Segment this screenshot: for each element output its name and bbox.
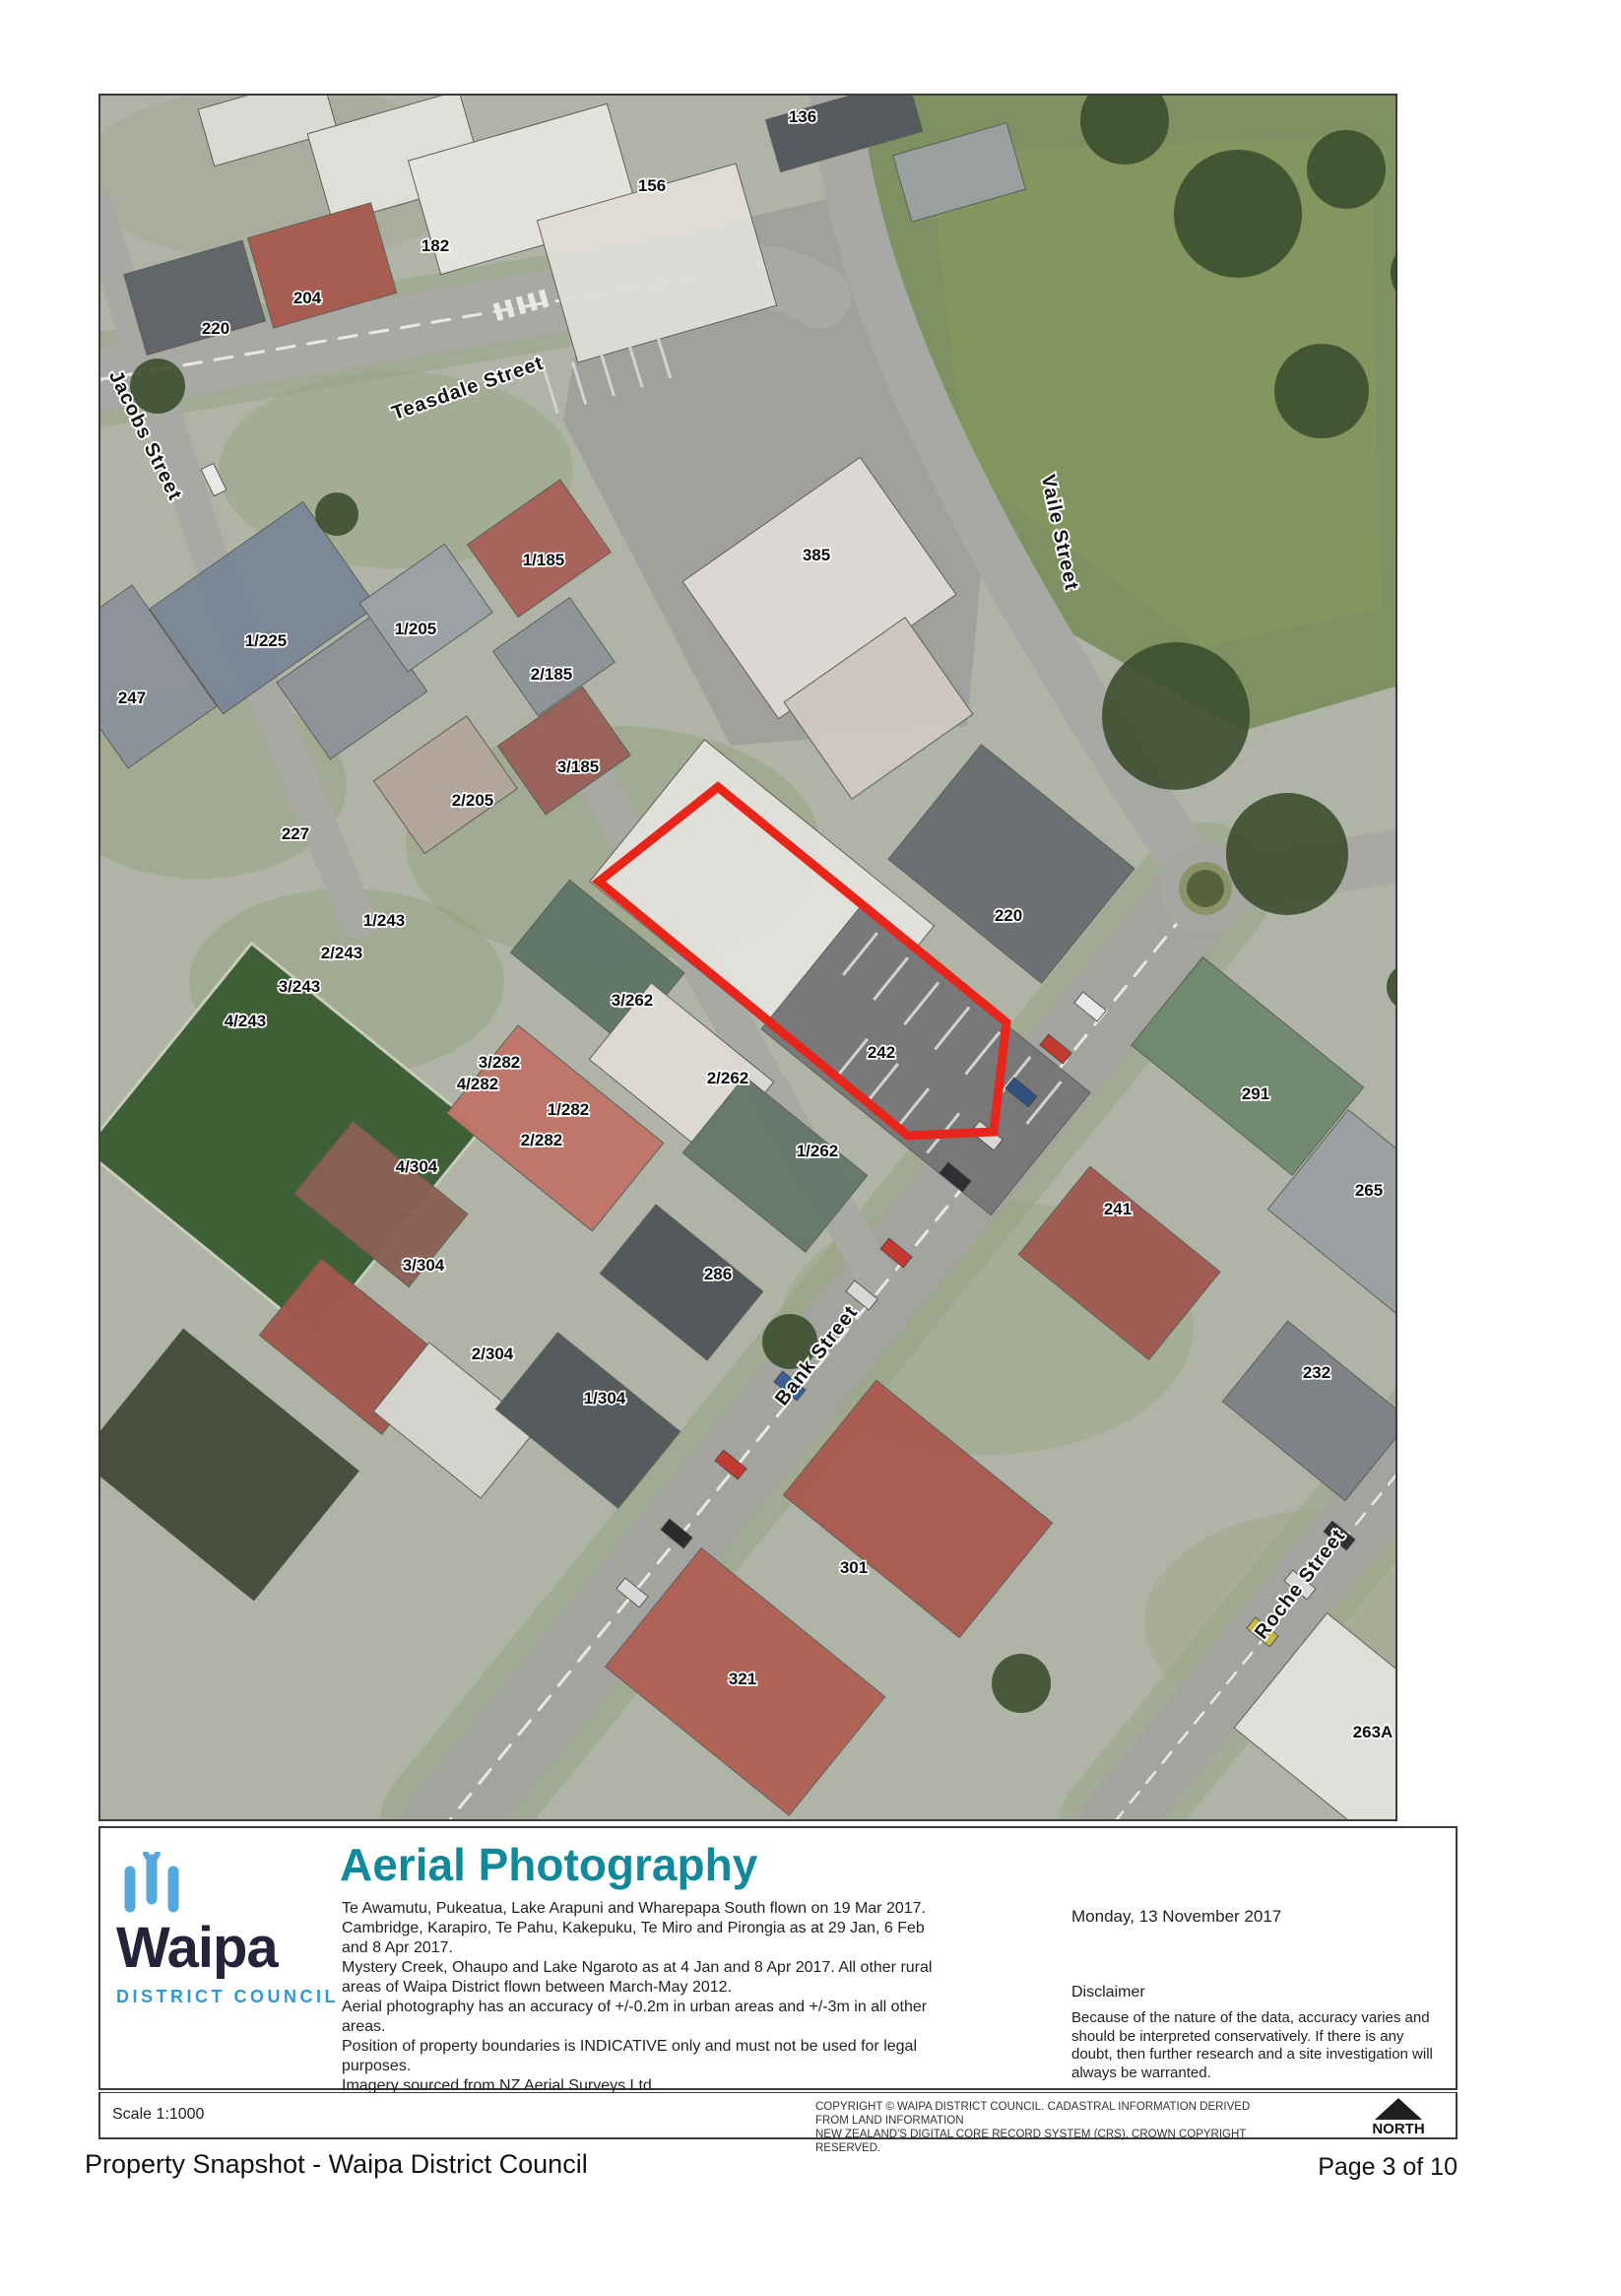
disclaimer-heading: Disclaimer <box>1071 1984 1145 2001</box>
parcel-label-321: 321 <box>729 1670 756 1688</box>
parcel-label-301: 301 <box>840 1558 868 1577</box>
parcel-label-136: 136 <box>789 107 816 126</box>
aerial-photography-description: Te Awamutu, Pukeatua, Lake Arapuni and W… <box>342 1899 933 2096</box>
aerial-description-paragraph: Mystery Creek, Ohaupo and Lake Ngaroto a… <box>342 1958 933 1998</box>
logo-name: Waipa <box>116 1920 353 1977</box>
page-number: Page 3 of 10 <box>1162 2153 1458 2182</box>
waipa-logo: Waipa DISTRICT COUNCIL <box>116 1852 353 2007</box>
parcel-label-227: 227 <box>282 824 309 843</box>
parcel-label-4-304: 4/304 <box>396 1157 438 1176</box>
parcel-label-204: 204 <box>293 289 322 307</box>
parcel-label-1-185: 1/185 <box>523 551 565 569</box>
parcel-label-1-243: 1/243 <box>363 911 406 930</box>
waipa-crown-icon <box>116 1852 193 1913</box>
property-snapshot-page: Teasdale StreetJacobs StreetVaile Street… <box>0 0 1621 2296</box>
parcel-label-3-185: 3/185 <box>557 757 600 776</box>
document-footer-title: Property Snapshot - Waipa District Counc… <box>85 2149 588 2180</box>
parcel-label-3-304: 3/304 <box>403 1256 445 1275</box>
copyright-line-2: NEW ZEALAND'S DIGITAL CORE RECORD SYSTEM… <box>815 2128 1278 2155</box>
aerial-photo-canvas: Teasdale StreetJacobs StreetVaile Street… <box>100 96 1395 1819</box>
copyright-notice: COPYRIGHT © WAIPA DISTRICT COUNCIL. CADA… <box>815 2100 1278 2155</box>
snapshot-date: Monday, 13 November 2017 <box>1071 1907 1281 1927</box>
parcel-label-263a: 263A <box>1353 1723 1394 1741</box>
parcel-label-1-282: 1/282 <box>548 1100 590 1119</box>
parcel-label-2-262: 2/262 <box>707 1069 749 1087</box>
parcel-label-247: 247 <box>118 689 146 707</box>
scale-label: Scale 1:1000 <box>112 2106 204 2124</box>
parcel-label-156: 156 <box>638 176 666 195</box>
parcel-label-1-205: 1/205 <box>395 620 437 638</box>
aerial-photography-title: Aerial Photography <box>340 1838 757 1891</box>
parcel-label-220: 220 <box>202 319 229 338</box>
aerial-map: Teasdale StreetJacobs StreetVaile Street… <box>98 94 1397 1821</box>
disclaimer-text: Because of the nature of the data, accur… <box>1071 2009 1438 2082</box>
parcel-label-3-243: 3/243 <box>279 977 321 996</box>
parcel-label-3-262: 3/262 <box>612 991 654 1010</box>
parcel-label-2-205: 2/205 <box>452 791 494 810</box>
aerial-description-paragraph: Position of property boundaries is INDIC… <box>342 2037 933 2076</box>
north-arrow-icon: NORTH <box>1367 2096 1430 2137</box>
parcel-label-2-282: 2/282 <box>521 1131 563 1149</box>
parcel-label-2-304: 2/304 <box>472 1345 514 1363</box>
parcel-label-3-282: 3/282 <box>479 1053 521 1072</box>
aerial-description-paragraph: Te Awamutu, Pukeatua, Lake Arapuni and W… <box>342 1899 933 1958</box>
parcel-label-1-262: 1/262 <box>797 1142 839 1160</box>
north-indicator: NORTH <box>1367 2096 1430 2137</box>
parcel-label-232: 232 <box>1303 1363 1330 1382</box>
parcel-label-291: 291 <box>1242 1084 1269 1103</box>
logo-subtitle: DISTRICT COUNCIL <box>116 1987 353 2007</box>
parcel-label-2-243: 2/243 <box>321 944 363 962</box>
parcel-label-220: 220 <box>995 906 1022 925</box>
svg-text:NORTH: NORTH <box>1372 2121 1424 2137</box>
parcel-label-1-304: 1/304 <box>584 1389 626 1408</box>
parcel-label-182: 182 <box>421 236 449 255</box>
parcel-label-286: 286 <box>704 1265 732 1283</box>
parcel-label-242: 242 <box>868 1043 895 1062</box>
parcel-label-385: 385 <box>803 546 830 564</box>
parcel-label-1-225: 1/225 <box>245 631 288 650</box>
parcel-label-241: 241 <box>1104 1200 1132 1218</box>
parcel-label-2-185: 2/185 <box>531 665 573 684</box>
parcel-label-265: 265 <box>1355 1181 1383 1200</box>
aerial-description-paragraph: Aerial photography has an accuracy of +/… <box>342 1998 933 2037</box>
copyright-line-1: COPYRIGHT © WAIPA DISTRICT COUNCIL. CADA… <box>815 2100 1278 2128</box>
parcel-label-4-282: 4/282 <box>457 1075 499 1093</box>
parcel-label-4-243: 4/243 <box>225 1012 267 1030</box>
